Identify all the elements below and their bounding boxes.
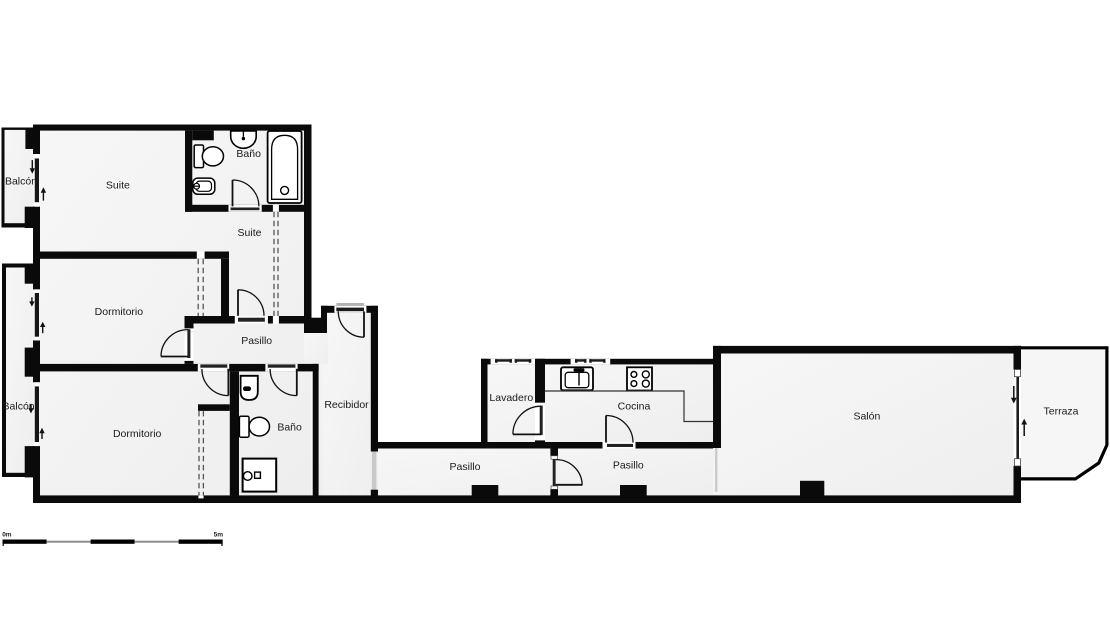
svg-text:Terraza: Terraza: [1043, 406, 1078, 418]
svg-text:Dormitorio: Dormitorio: [113, 428, 162, 440]
svg-text:Balcón: Balcón: [3, 401, 35, 413]
svg-text:Baño: Baño: [277, 422, 302, 434]
svg-text:Pasillo: Pasillo: [241, 335, 272, 347]
svg-text:Dormitorio: Dormitorio: [95, 306, 144, 318]
svg-text:Pasillo: Pasillo: [613, 460, 644, 472]
svg-text:Baño: Baño: [236, 148, 261, 160]
svg-text:Salón: Salón: [853, 411, 880, 423]
svg-text:Suite: Suite: [238, 227, 262, 239]
svg-text:Balcón: Balcón: [5, 175, 37, 187]
svg-text:Recibidor: Recibidor: [324, 399, 369, 411]
svg-text:0m: 0m: [2, 532, 12, 539]
svg-text:Suite: Suite: [106, 180, 130, 192]
svg-text:Lavadero: Lavadero: [489, 392, 533, 404]
svg-text:5m: 5m: [214, 532, 224, 539]
svg-text:Cocina: Cocina: [618, 401, 651, 413]
svg-text:Pasillo: Pasillo: [450, 461, 481, 473]
